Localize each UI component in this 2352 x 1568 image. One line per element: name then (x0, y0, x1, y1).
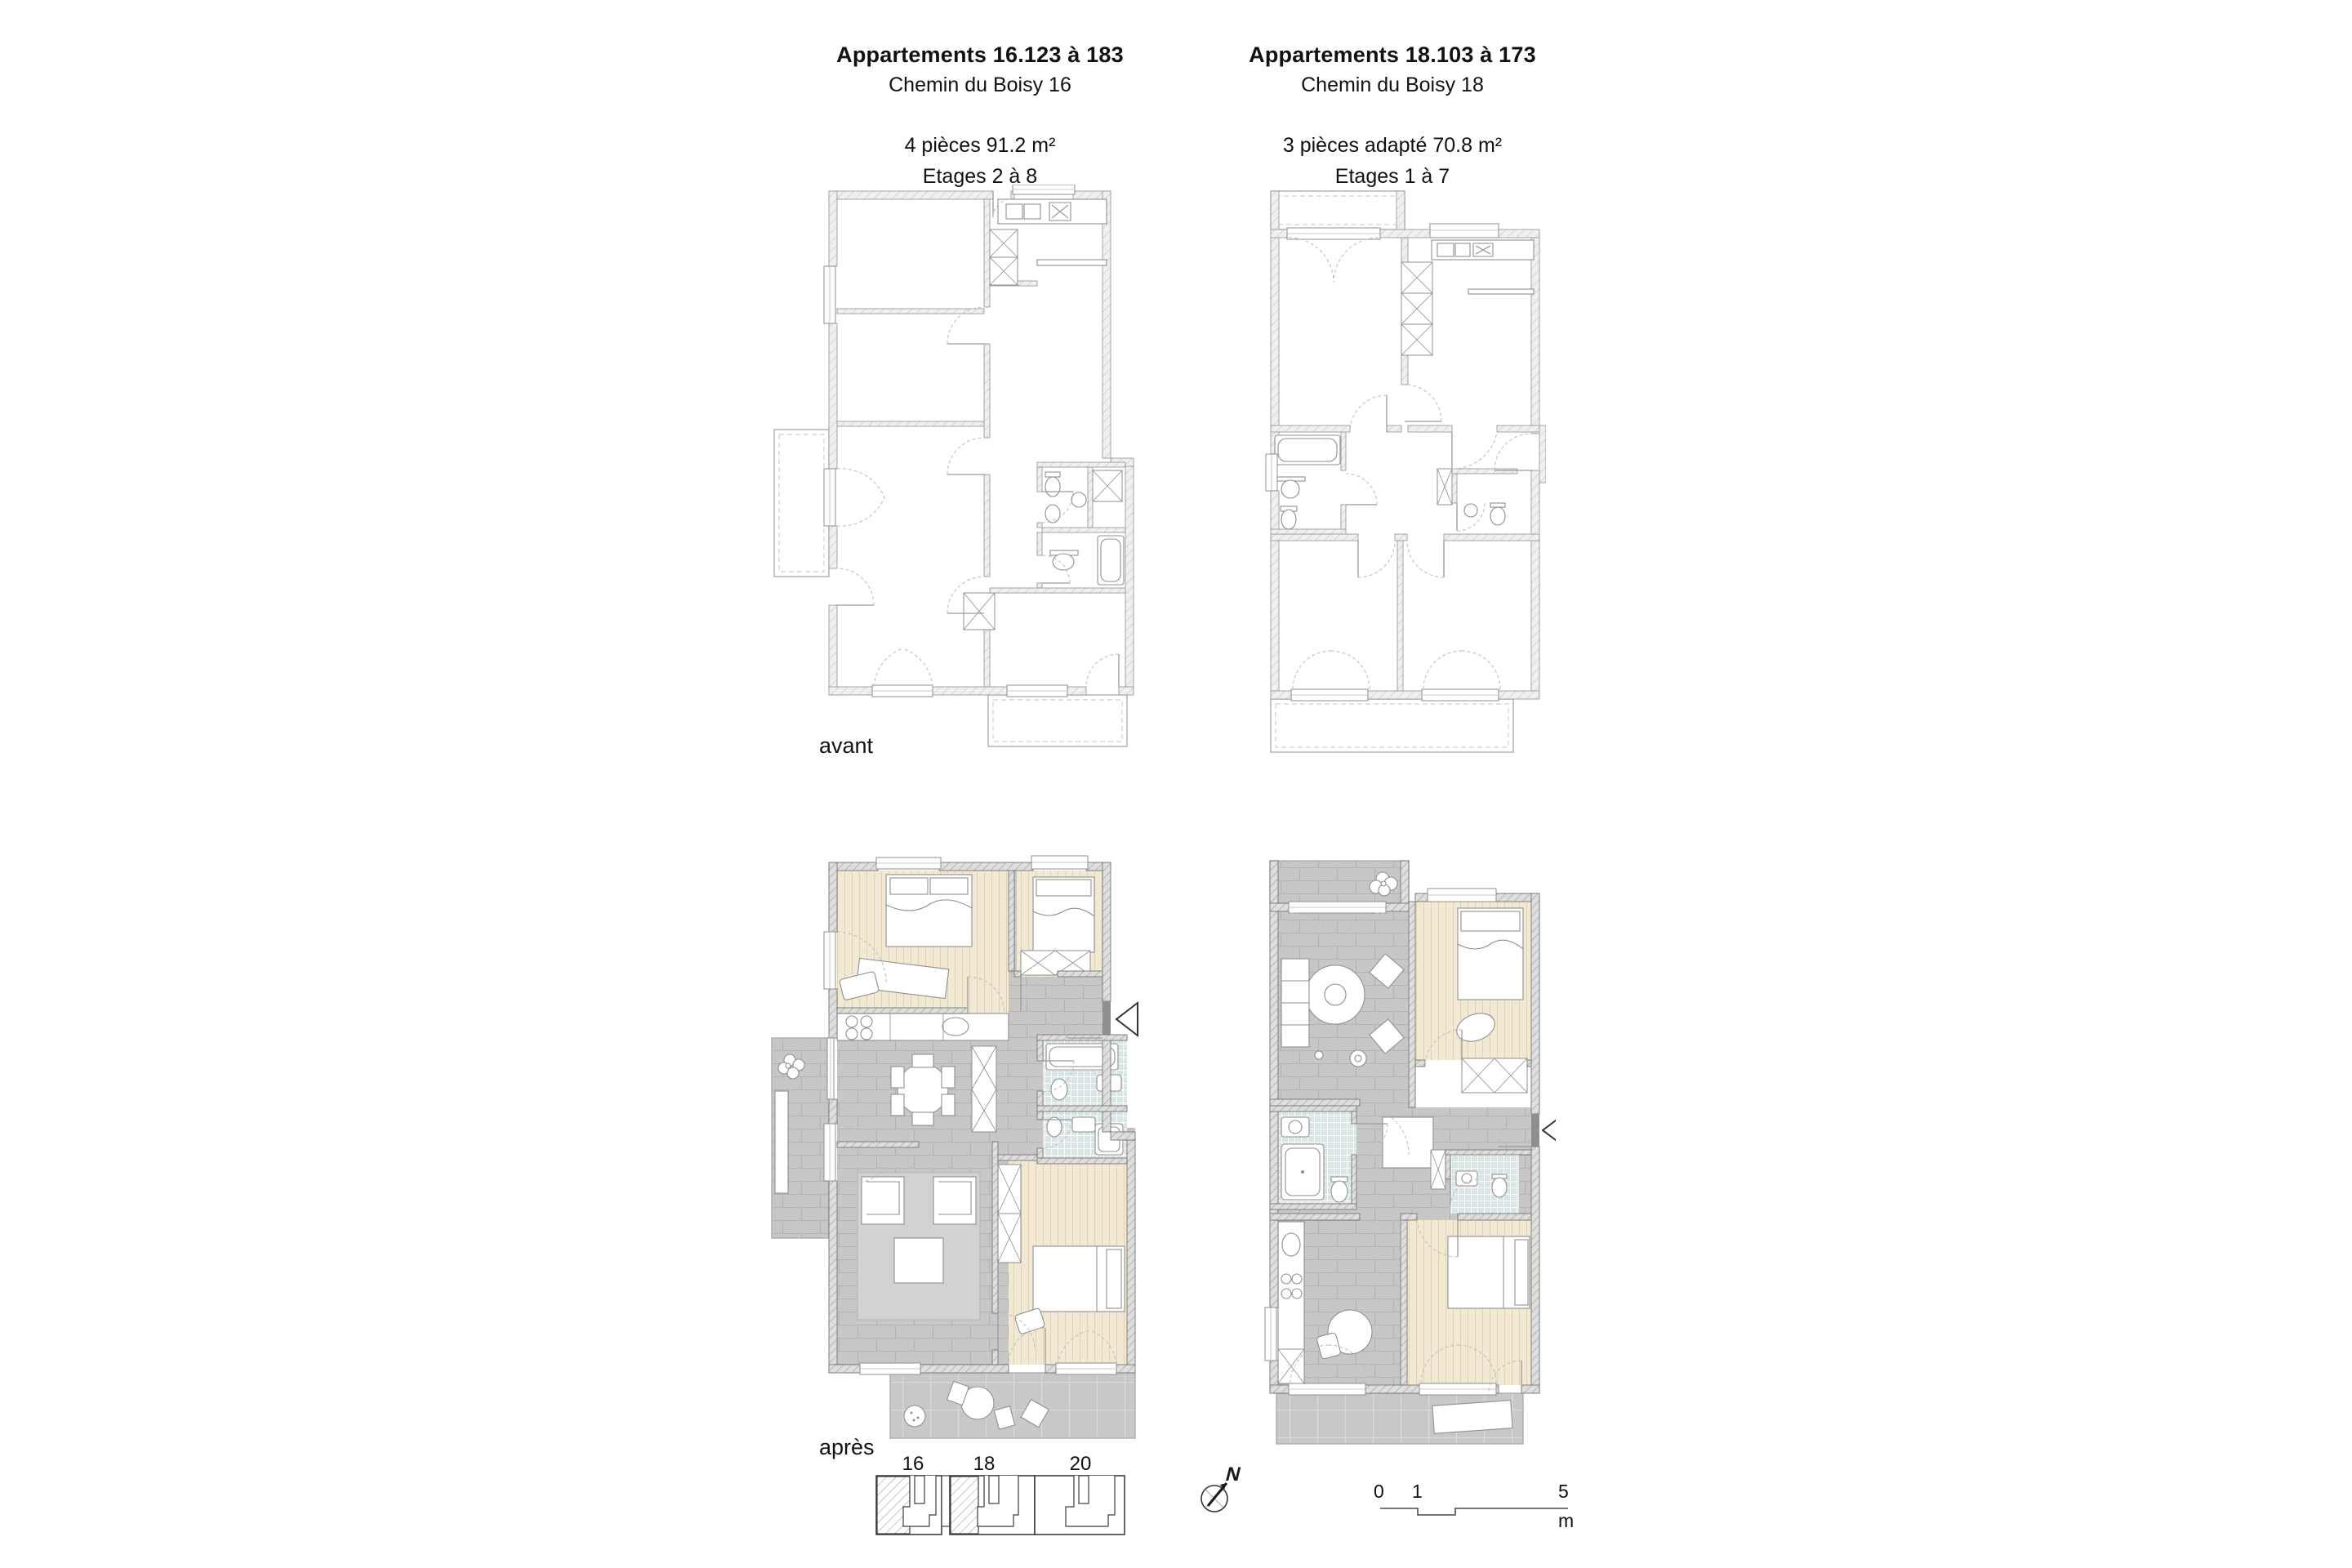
floor-plan-apres-18 (1262, 854, 1556, 1449)
vent-shafts (1401, 262, 1452, 505)
entrance-arrow-icon (1116, 1003, 1138, 1036)
title-18: Appartements 18.103 à 173 (1139, 42, 1646, 68)
north-arrow-icon: N (1192, 1466, 1258, 1527)
address-18: Chemin du Boisy 18 (1139, 73, 1646, 97)
plan-sheet: Appartements 16.123 à 183 Chemin du Bois… (0, 0, 2352, 1568)
bath-fixtures (1275, 435, 1505, 529)
spec-18: 3 pièces adapté 70.8 m² (1139, 134, 1646, 158)
entrance-arrow-icon (1543, 1116, 1556, 1145)
floor-plan-avant-16 (768, 185, 1151, 756)
north-label: N (1223, 1466, 1243, 1486)
scale-bar (1370, 1477, 1583, 1534)
terrace-plant-icon (904, 1405, 925, 1427)
kitchen-fixtures (1278, 1222, 1304, 1383)
site-key-plan (870, 1466, 1131, 1548)
floor-plan-avant-18 (1264, 185, 1546, 756)
floor-plan-apres-16 (764, 854, 1156, 1446)
kitchen-fixtures (837, 1013, 1009, 1040)
header-apartment-18: Appartements 18.103 à 173 Chemin du Bois… (1139, 42, 1646, 189)
kitchen-fixtures (1432, 240, 1534, 294)
